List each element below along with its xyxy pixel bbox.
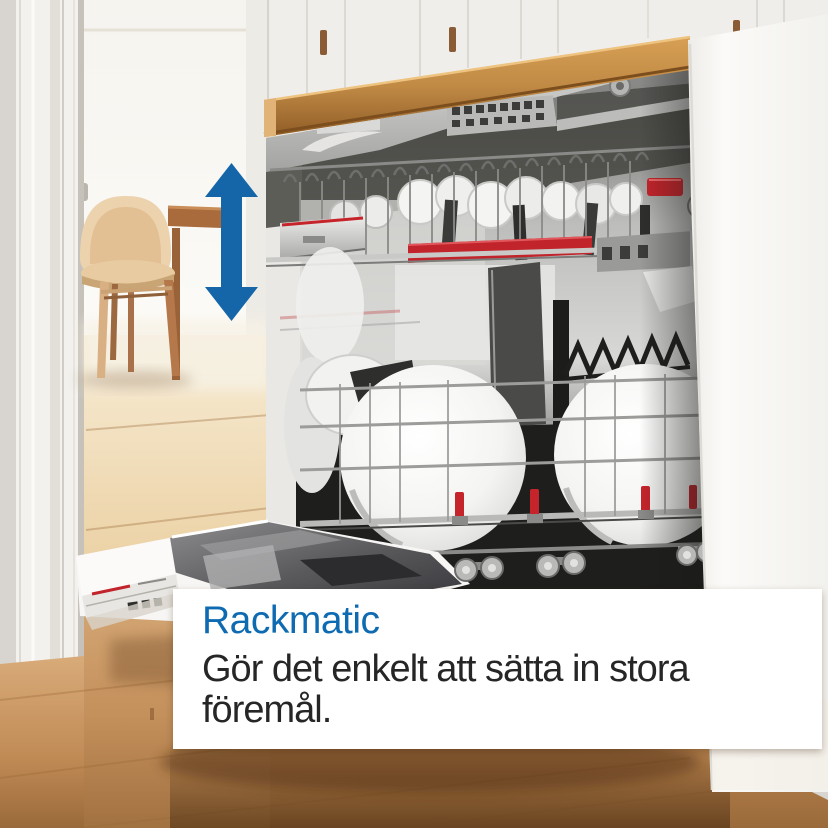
cabinet-knob-icon: [449, 27, 456, 52]
bosch-emblem: [303, 236, 325, 243]
feature-description-line2: föremål.: [202, 690, 822, 731]
left-door-frame: [0, 0, 84, 664]
white-cookware: [296, 247, 364, 363]
feature-description-line1: Gör det enkelt att sätta in stora: [202, 649, 822, 690]
dishwasher-interior: [266, 50, 736, 606]
countertop-end-grain: [264, 98, 276, 137]
feature-caption-box: Rackmatic Gör det enkelt att sätta in st…: [173, 589, 822, 749]
product-feature-image: Rackmatic Gör det enkelt att sätta in st…: [0, 0, 828, 828]
feature-title: Rackmatic: [202, 599, 822, 643]
cabinet-knob-icon: [320, 30, 327, 55]
